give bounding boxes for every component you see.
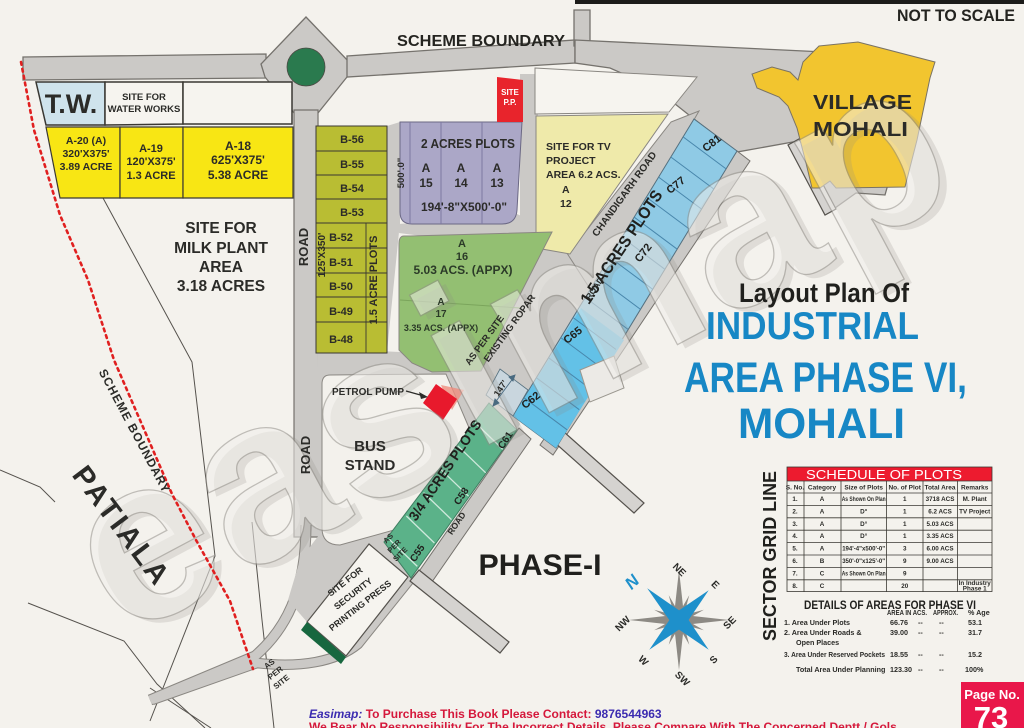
svg-text:9: 9 xyxy=(903,570,907,577)
svg-text:AREA 6.2 ACS.: AREA 6.2 ACS. xyxy=(546,169,621,181)
svg-text:ROAD: ROAD xyxy=(298,436,313,474)
svg-text:ROAD: ROAD xyxy=(296,228,311,266)
svg-text:Remarks: Remarks xyxy=(961,485,989,492)
svg-text:2.: 2. xyxy=(792,508,798,515)
svg-text:% Age: % Age xyxy=(968,608,990,617)
svg-text:500'.0": 500'.0" xyxy=(396,158,407,189)
svg-text:A: A xyxy=(562,184,570,196)
svg-text:B-53: B-53 xyxy=(340,207,364,219)
svg-text:3.35 ACS: 3.35 ACS xyxy=(926,533,953,540)
svg-text:--: -- xyxy=(918,650,923,659)
svg-text:--: -- xyxy=(918,665,923,674)
svg-text:6.: 6. xyxy=(792,558,798,565)
svg-text:5.38 ACRE: 5.38 ACRE xyxy=(208,168,268,182)
svg-text:1.: 1. xyxy=(792,496,798,503)
svg-text:AREA: AREA xyxy=(199,259,243,276)
svg-text:A: A xyxy=(820,533,825,540)
svg-text:1. Area Under Plots: 1. Area Under Plots xyxy=(784,618,850,627)
svg-text:Total Area: Total Area xyxy=(924,485,955,492)
svg-text:--: -- xyxy=(939,665,944,674)
svg-text:SITE FOR TV: SITE FOR TV xyxy=(546,141,611,153)
svg-text:SITE FOR: SITE FOR xyxy=(122,92,166,103)
svg-text:A: A xyxy=(820,496,825,503)
svg-text:SITE FOR: SITE FOR xyxy=(185,220,256,237)
svg-text:WATER WORKS: WATER WORKS xyxy=(108,104,181,115)
svg-text:3.35 ACS. (APPX): 3.35 ACS. (APPX) xyxy=(404,323,478,333)
svg-text:1: 1 xyxy=(903,508,907,515)
svg-text:16: 16 xyxy=(456,251,468,263)
svg-text:AREA PHASE VI,: AREA PHASE VI, xyxy=(684,354,967,402)
svg-text:VILLAGE: VILLAGE xyxy=(813,92,912,114)
svg-text:--: -- xyxy=(939,618,944,627)
svg-text:B-56: B-56 xyxy=(340,134,364,146)
svg-text:125'X350': 125'X350' xyxy=(317,233,328,278)
svg-text:3.89 ACRE: 3.89 ACRE xyxy=(60,161,113,173)
svg-text:BUS: BUS xyxy=(354,438,386,455)
svg-text:D°: D° xyxy=(860,507,868,515)
svg-text:Size of Plots: Size of Plots xyxy=(844,485,883,492)
svg-text:NOT TO SCALE: NOT TO SCALE xyxy=(897,6,1015,25)
svg-text:B-49: B-49 xyxy=(329,306,353,318)
svg-text:1.3 ACRE: 1.3 ACRE xyxy=(126,170,175,182)
svg-text:B-52: B-52 xyxy=(329,232,353,244)
svg-text:9: 9 xyxy=(903,558,907,565)
svg-text:AREA IN ACS.: AREA IN ACS. xyxy=(887,608,927,617)
svg-text:MILK PLANT: MILK PLANT xyxy=(174,240,268,257)
svg-text:1.5 ACRE PLOTS: 1.5 ACRE PLOTS xyxy=(368,236,380,325)
svg-text:350'-0"x125'-0": 350'-0"x125'-0" xyxy=(842,558,885,565)
svg-text:--: -- xyxy=(918,628,923,637)
svg-text:T.W.: T.W. xyxy=(45,89,98,119)
svg-text:Open Places: Open Places xyxy=(796,638,839,647)
svg-text:A-19: A-19 xyxy=(139,143,163,155)
svg-text:D°: D° xyxy=(860,520,868,528)
svg-text:7.: 7. xyxy=(792,570,798,577)
svg-text:Total Area Under Planning: Total Area Under Planning xyxy=(796,665,885,674)
svg-text:123.30: 123.30 xyxy=(890,665,912,674)
svg-text:5.03 ACS. (APPX): 5.03 ACS. (APPX) xyxy=(414,263,513,277)
svg-text:12: 12 xyxy=(560,198,572,210)
svg-text:B-55: B-55 xyxy=(340,159,364,171)
svg-text:Phase 1: Phase 1 xyxy=(963,586,987,593)
svg-text:As Shown On Plan: As Shown On Plan xyxy=(842,570,886,577)
svg-text:3.18 ACRES: 3.18 ACRES xyxy=(177,278,265,295)
svg-text:6.2 ACS: 6.2 ACS xyxy=(928,508,952,515)
svg-text:--: -- xyxy=(939,628,944,637)
svg-text:PHASE-I: PHASE-I xyxy=(479,549,602,582)
svg-text:6.00 ACS: 6.00 ACS xyxy=(926,546,953,553)
svg-text:9.00 ACS: 9.00 ACS xyxy=(926,558,953,565)
svg-text:Layout Plan Of: Layout Plan Of xyxy=(739,278,910,308)
svg-text:TV Project: TV Project xyxy=(959,508,991,515)
svg-text:13: 13 xyxy=(490,176,504,190)
svg-text:C: C xyxy=(820,570,825,577)
svg-text:A: A xyxy=(493,161,502,175)
svg-text:B-48: B-48 xyxy=(329,334,353,346)
svg-text:A: A xyxy=(820,521,825,528)
svg-text:31.7: 31.7 xyxy=(968,628,982,637)
svg-text:S. No.: S. No. xyxy=(786,485,805,492)
svg-text:1: 1 xyxy=(903,533,907,540)
svg-text:2. Area Under Roads &: 2. Area Under Roads & xyxy=(784,628,862,637)
svg-text:Category: Category xyxy=(808,485,837,492)
svg-text:--: -- xyxy=(939,650,944,659)
svg-text:MOHALI: MOHALI xyxy=(813,119,908,141)
svg-text:PROJECT: PROJECT xyxy=(546,155,596,167)
svg-text:B: B xyxy=(820,558,825,565)
svg-text:C: C xyxy=(820,583,825,590)
svg-text:3718 ACS: 3718 ACS xyxy=(926,496,955,503)
svg-text:A-18: A-18 xyxy=(225,139,251,153)
svg-text:3. Area Under Reserved Pocket: 3. Area Under Reserved Pockets xyxy=(784,650,885,659)
svg-text:3.: 3. xyxy=(792,521,798,528)
svg-text:We Bear No Responsibility For: We Bear No Responsibility For The Incorr… xyxy=(309,720,897,728)
svg-text:5.03 ACS: 5.03 ACS xyxy=(926,521,953,528)
svg-text:1: 1 xyxy=(903,521,907,528)
svg-text:SCHEDULE OF PLOTS: SCHEDULE OF PLOTS xyxy=(806,468,962,482)
svg-text:B-51: B-51 xyxy=(329,257,353,269)
svg-text:66.76: 66.76 xyxy=(890,618,908,627)
svg-text:3: 3 xyxy=(903,546,907,553)
svg-text:A: A xyxy=(422,161,431,175)
svg-text:1: 1 xyxy=(903,496,907,503)
svg-text:18.55: 18.55 xyxy=(890,650,908,659)
svg-text:B-50: B-50 xyxy=(329,281,353,293)
svg-text:Easimap: To Purchase This Book: Easimap: To Purchase This Book Please Co… xyxy=(309,707,662,721)
svg-text:SECTOR GRID LINE: SECTOR GRID LINE xyxy=(760,471,780,641)
svg-text:100%: 100% xyxy=(965,665,984,674)
svg-text:As Shown On Plan: As Shown On Plan xyxy=(842,496,886,503)
svg-text:17: 17 xyxy=(435,309,447,320)
svg-text:8.: 8. xyxy=(792,583,798,590)
svg-text:STAND: STAND xyxy=(345,457,396,474)
svg-text:14: 14 xyxy=(454,176,468,190)
svg-text:625'X375': 625'X375' xyxy=(211,153,265,167)
svg-text:15: 15 xyxy=(419,176,433,190)
svg-text:A: A xyxy=(457,161,466,175)
svg-text:SITE: SITE xyxy=(501,88,519,97)
svg-text:A: A xyxy=(820,508,825,515)
svg-text:53.1: 53.1 xyxy=(968,618,982,627)
svg-text:MOHALI: MOHALI xyxy=(738,400,905,448)
svg-text:15.2: 15.2 xyxy=(968,650,982,659)
svg-text:A-20 (A): A-20 (A) xyxy=(66,135,106,147)
svg-text:4.: 4. xyxy=(792,533,798,540)
svg-text:A: A xyxy=(820,546,825,553)
svg-text:A: A xyxy=(458,238,466,250)
svg-text:INDUSTRIAL: INDUSTRIAL xyxy=(706,305,919,348)
svg-text:M. Plant: M. Plant xyxy=(963,496,988,503)
svg-text:D°: D° xyxy=(860,532,868,540)
svg-text:--: -- xyxy=(918,618,923,627)
svg-text:2 ACRES PLOTS: 2 ACRES PLOTS xyxy=(421,136,515,151)
svg-text:SCHEME BOUNDARY: SCHEME BOUNDARY xyxy=(397,33,566,50)
svg-text:PETROL PUMP: PETROL PUMP xyxy=(332,387,404,398)
svg-text:320'X375': 320'X375' xyxy=(62,148,109,160)
svg-text:5.: 5. xyxy=(792,546,798,553)
svg-text:73: 73 xyxy=(974,700,1008,728)
svg-text:P.P.: P.P. xyxy=(503,98,516,107)
svg-text:194'-4"x500'-0": 194'-4"x500'-0" xyxy=(842,546,885,553)
svg-text:A: A xyxy=(437,297,444,308)
svg-text:B-54: B-54 xyxy=(340,183,365,195)
svg-text:39.00: 39.00 xyxy=(890,628,908,637)
svg-text:APPROX.: APPROX. xyxy=(933,608,958,617)
svg-text:120'X375': 120'X375' xyxy=(126,156,176,168)
svg-text:20: 20 xyxy=(901,583,909,590)
svg-text:No. of Plot: No. of Plot xyxy=(888,485,921,492)
svg-text:194'-8"X500'-0": 194'-8"X500'-0" xyxy=(421,202,507,214)
